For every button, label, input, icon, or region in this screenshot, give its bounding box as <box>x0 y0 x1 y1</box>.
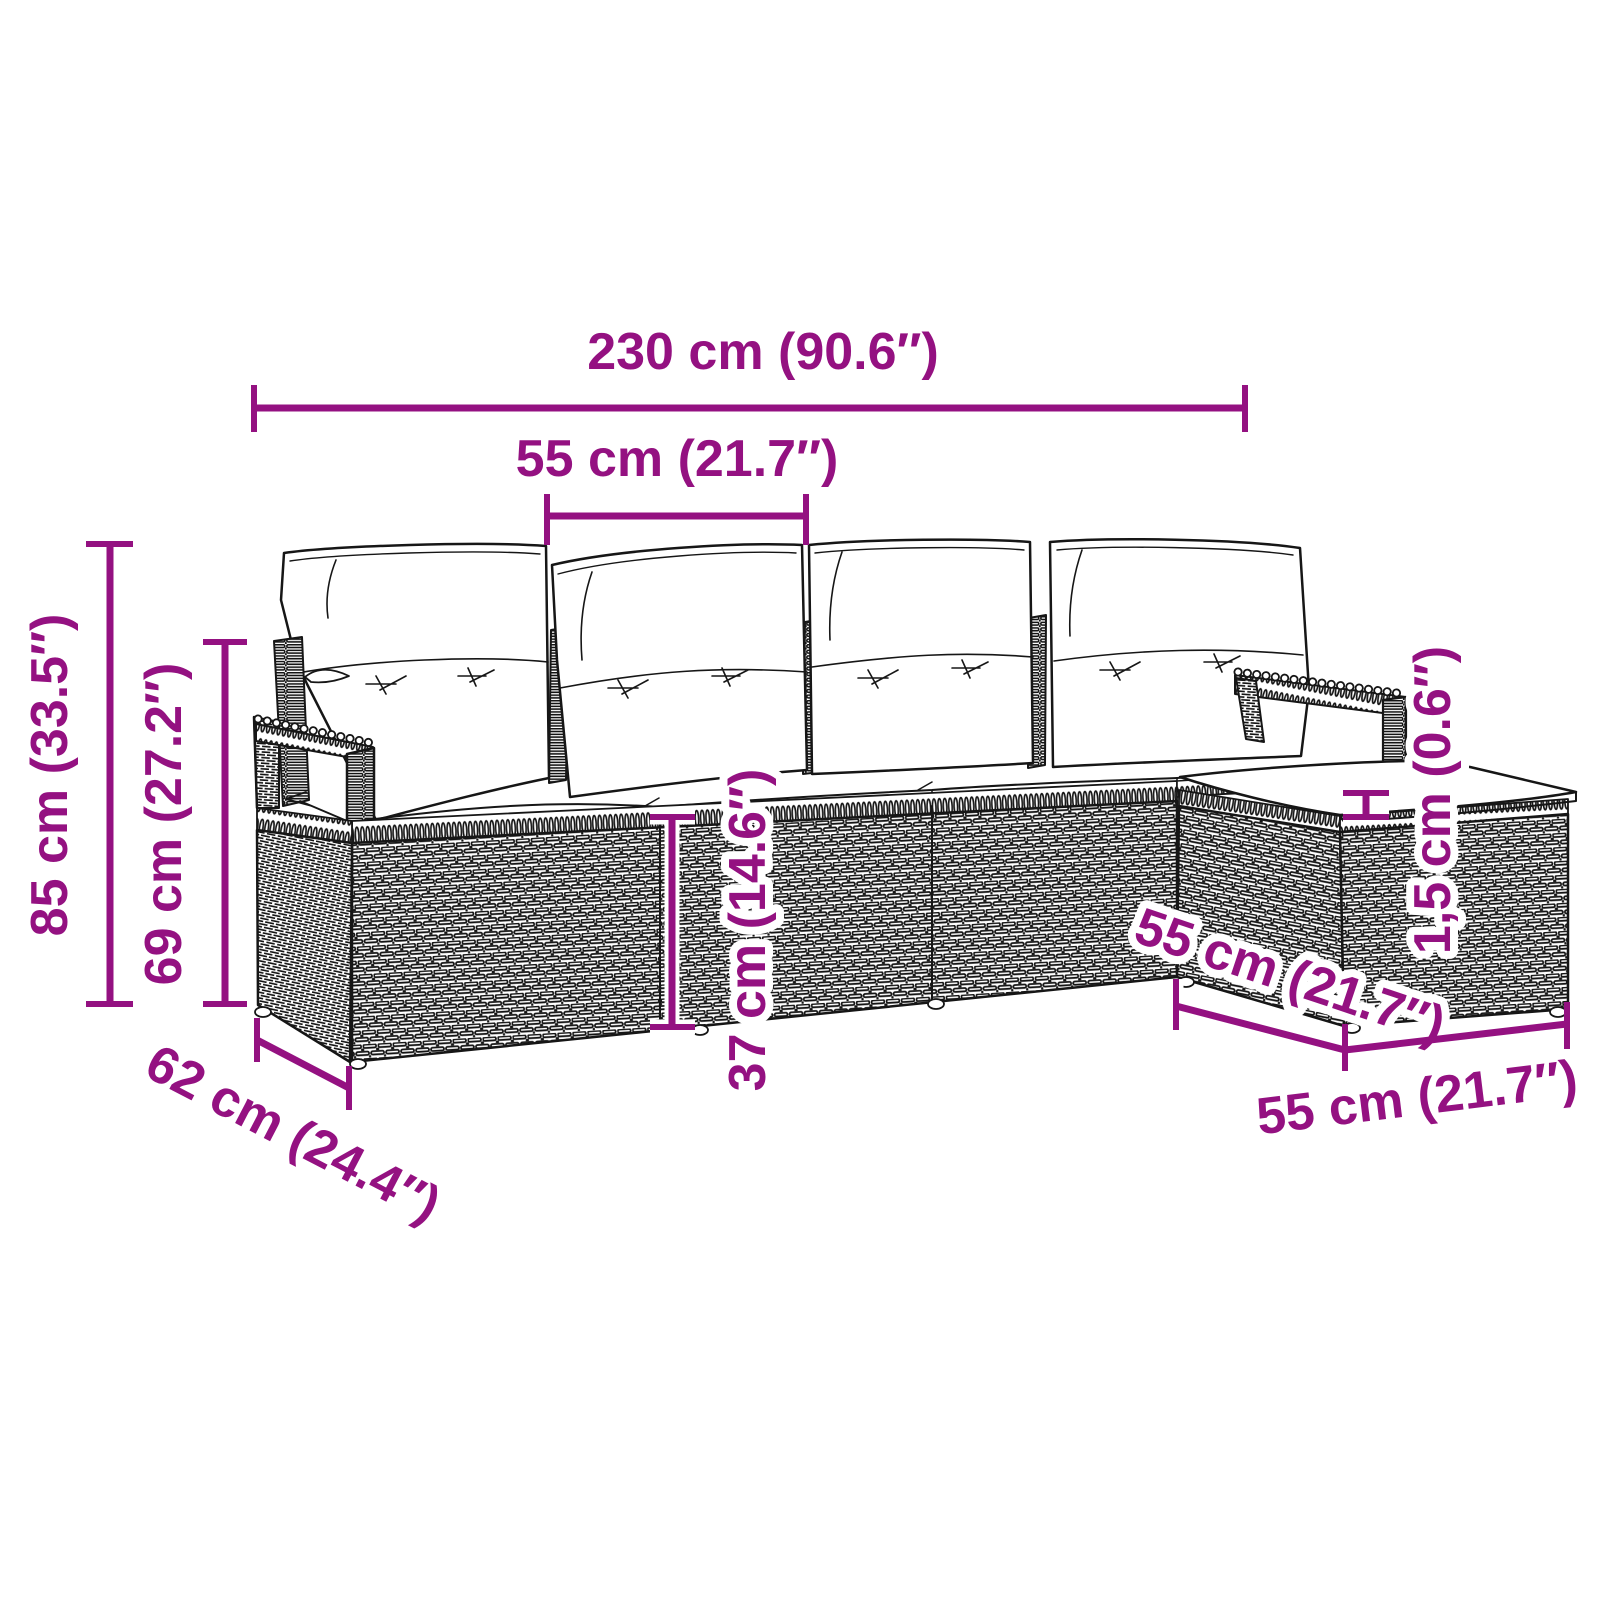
svg-text:69 cm (27.2″): 69 cm (27.2″) <box>135 663 193 986</box>
svg-text:37 cm (14.6″): 37 cm (14.6″) <box>719 769 777 1092</box>
svg-text:55 cm (21.7″): 55 cm (21.7″) <box>516 430 839 488</box>
svg-text:85 cm (33.5″): 85 cm (33.5″) <box>21 614 79 937</box>
svg-text:1,5 cm (0.6″): 1,5 cm (0.6″) <box>1404 646 1462 954</box>
svg-text:230 cm (90.6″): 230 cm (90.6″) <box>587 323 939 381</box>
